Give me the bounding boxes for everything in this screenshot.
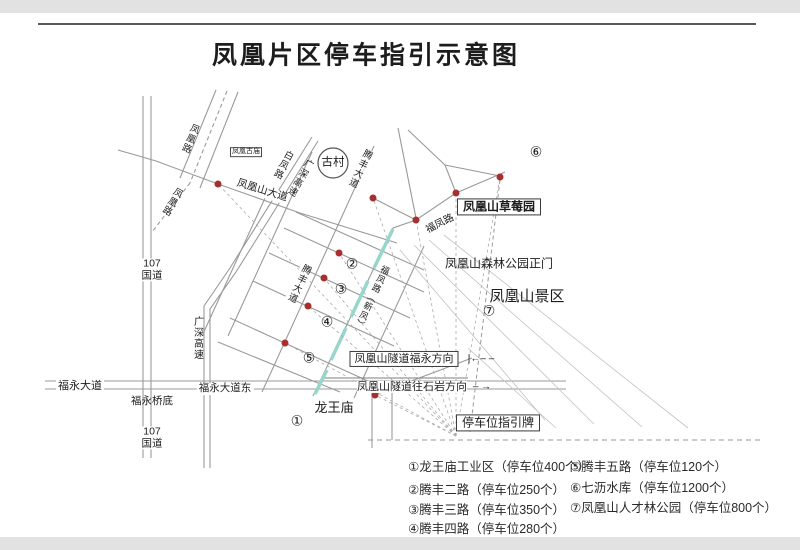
tunnel-to-shiyan-arrow: – → — [473, 382, 491, 393]
legend-item-7: ⑦凤凰山人才林公园（停车位800个） — [570, 497, 777, 516]
place-strawberry-park: 凤凰山草莓园 — [457, 198, 541, 215]
map-marker-5: ⑤ — [303, 350, 316, 365]
road-label-fuyong-dadao: 福永大道 — [56, 380, 104, 392]
place-gucun: 古村 — [322, 157, 345, 170]
place-scenic-area: 凤凰山景区 — [489, 289, 564, 306]
tunnel-to-fuyong-label: 凤凰山隧道福永方向 — [350, 351, 459, 367]
place-gumiao: 凤凰古庙 — [230, 147, 262, 157]
legend-item-4: ④腾丰四路（停车位280个） — [408, 518, 565, 537]
road-label-fuyong-qiaodi: 福永桥底 — [131, 396, 173, 408]
map-marker-3: ③ — [335, 281, 348, 296]
highlighted-road — [315, 229, 393, 394]
map-marker-2: ② — [346, 256, 359, 271]
map-marker-4: ④ — [321, 314, 334, 329]
place-longwangmiao: 龙王庙 — [314, 401, 353, 415]
parking-guide-map-page: { "title": "凤凰片区停车指引示意图", "map": { "road… — [0, 0, 800, 550]
map-marker-7: ⑦ — [483, 303, 496, 318]
legend-item-1: ①龙王庙工业区（停车位400个） — [408, 456, 590, 475]
page-title: 凤凰片区停车指引示意图 — [212, 42, 520, 70]
tunnel-to-shiyan-label: 凤凰山隧道往石岩方向 — [357, 381, 467, 393]
legend-item-6: ⑥七沥水库（停车位1200个） — [570, 477, 734, 496]
legend-item-5: ⑤腾丰五路（停车位120个） — [570, 456, 727, 475]
parking-sign-label: 停车位指引牌 — [456, 414, 540, 431]
legend-item-2: ②腾丰二路（停车位250个） — [408, 479, 565, 498]
road-label-fuyong-dadao-east: 福永大道东 — [197, 383, 254, 395]
road-label-107-bottom: 107国道 — [139, 426, 165, 449]
guide-fan — [218, 177, 500, 436]
map-marker-1: ① — [291, 413, 304, 428]
road-label-107-top: 107国道 — [139, 258, 165, 281]
place-forest-park-gate: 凤凰山森林公园正门 — [445, 257, 553, 270]
legend-item-3: ③腾丰三路（停车位350个） — [408, 499, 565, 518]
road-label-guangshen-vertical: 广深高速 — [192, 316, 203, 360]
map-marker-6: ⑥ — [530, 144, 543, 159]
tunnel-to-fuyong-arrow: |←– – — [468, 354, 495, 365]
